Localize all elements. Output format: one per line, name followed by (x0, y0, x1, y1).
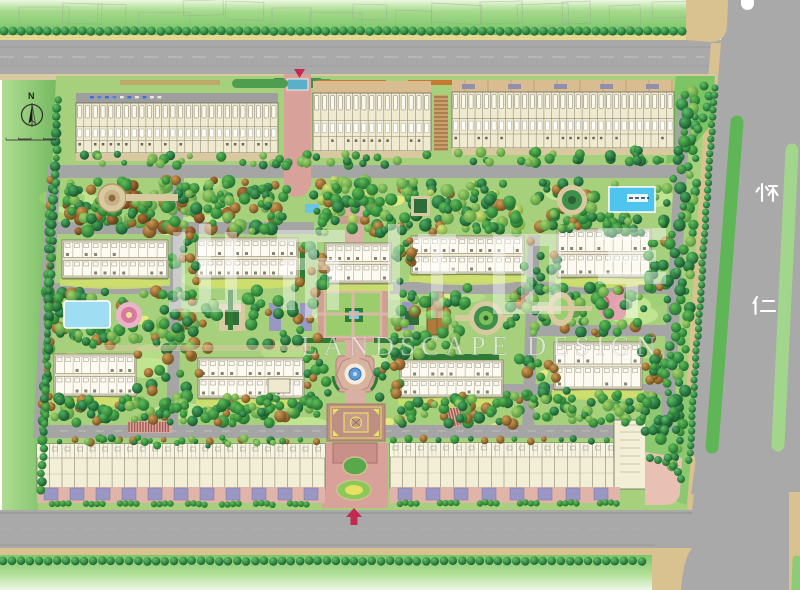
svg-text:N: N (28, 91, 35, 101)
svg-text:LANDSCAPE DESIGN: LANDSCAPE DESIGN (301, 331, 662, 361)
